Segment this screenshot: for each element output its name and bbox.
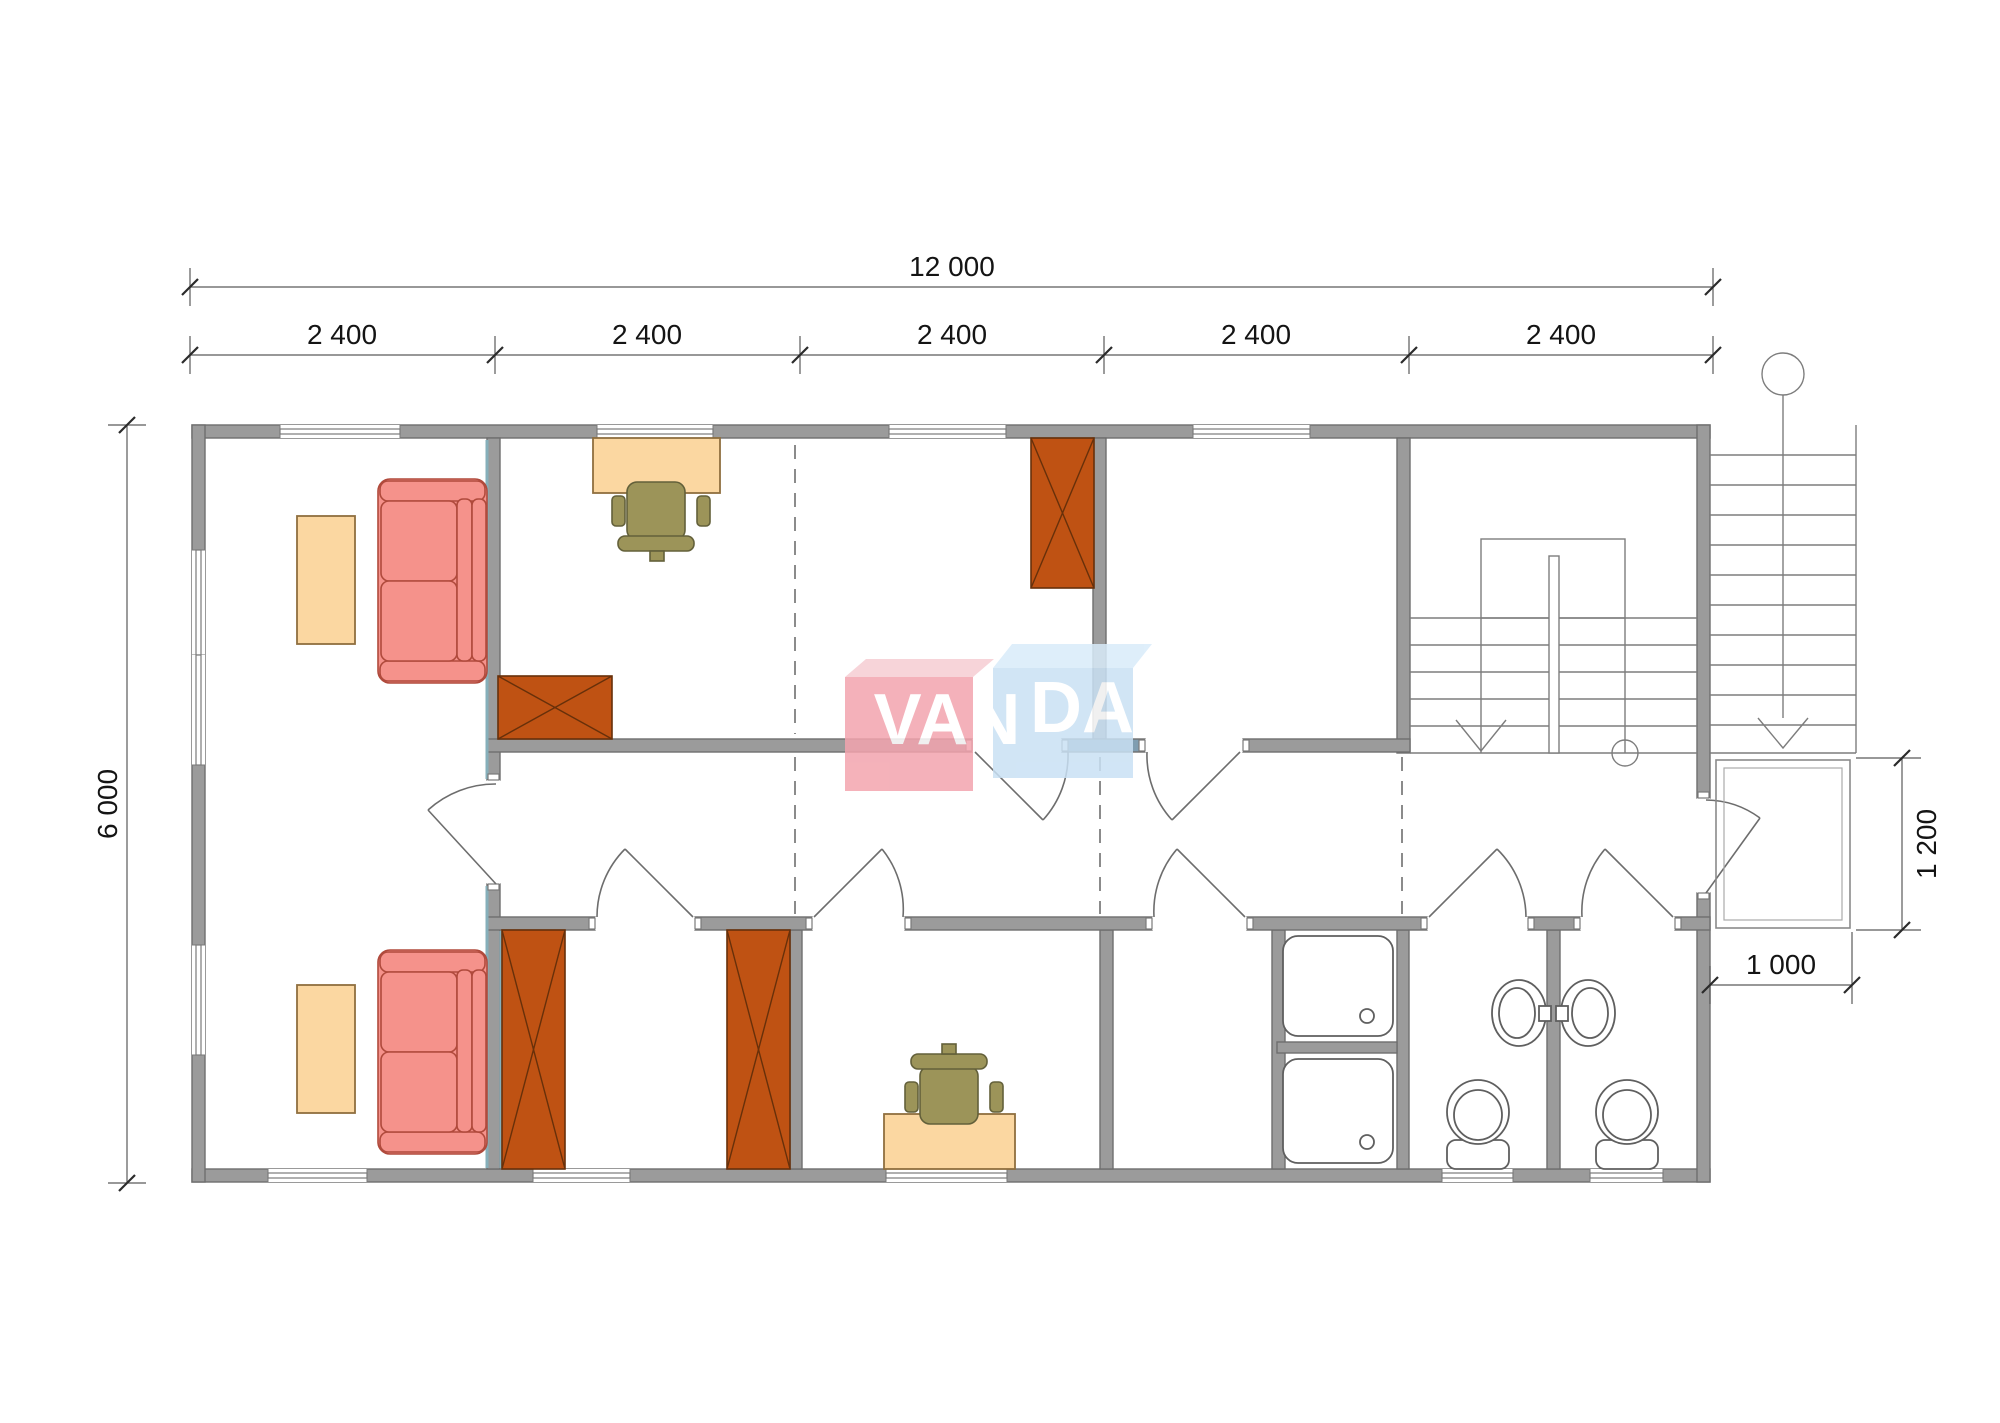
door-opening [1574, 917, 1681, 930]
wall-hall-bottom-2 [695, 917, 812, 930]
coffee-table [297, 985, 355, 1113]
dim-label-height: 6 000 [92, 769, 123, 839]
sofa [378, 950, 487, 1154]
wall-bedroom1-right [790, 930, 802, 1169]
dim-label-porch-depth: 1 200 [1911, 809, 1942, 879]
window [192, 945, 205, 1055]
wall-shower-divider [1277, 1042, 1397, 1053]
wall-exterior-right-lower [1697, 893, 1710, 1182]
window [889, 425, 1006, 438]
dim-label-bay-1: 2 400 [307, 319, 377, 350]
dim-label-bay-3: 2 400 [917, 319, 987, 350]
shower-tray [1283, 1059, 1393, 1163]
dim-label-total-width: 12 000 [909, 251, 995, 282]
wardrobe [727, 930, 790, 1169]
door-opening [487, 774, 500, 890]
floor-plan-canvas: 12 000 2 400 2 400 2 400 2 400 2 400 6 0… [0, 0, 2000, 1423]
window [533, 1169, 630, 1182]
wall-hall-bottom-3 [905, 917, 1152, 930]
window [192, 655, 205, 765]
shower-tray [1283, 936, 1393, 1036]
wall-hall-top-right [1243, 739, 1410, 752]
stair-rail [1549, 556, 1559, 753]
wardrobe [1031, 438, 1094, 588]
wall-exterior-left [192, 425, 205, 1182]
window [192, 550, 205, 655]
door-opening [1421, 917, 1534, 930]
wall-hall-bottom-1 [487, 917, 595, 930]
door-opening [1146, 917, 1253, 930]
wall-stair-left [1397, 438, 1410, 753]
window [886, 1169, 1007, 1182]
watermark-red-box-top [845, 659, 994, 677]
dim-label-porch-width: 1 000 [1746, 949, 1816, 980]
window [1193, 425, 1310, 438]
dim-label-bay-4: 2 400 [1221, 319, 1291, 350]
toilet [1596, 1080, 1658, 1169]
floor-plan-drawing: 12 000 2 400 2 400 2 400 2 400 2 400 6 0… [0, 0, 2000, 1423]
sofa [378, 479, 487, 683]
door-opening [589, 917, 701, 930]
wall-hall-bottom-5 [1528, 917, 1580, 930]
window [268, 1169, 367, 1182]
wall-bedroom2-right [1100, 930, 1113, 1169]
dim-label-bay-5: 2 400 [1526, 319, 1596, 350]
watermark-text-right: DA [1030, 668, 1134, 748]
door-opening [1139, 739, 1249, 752]
door-opening [806, 917, 911, 930]
toilet [1447, 1080, 1509, 1169]
watermark-logo: VAN DA [845, 644, 1152, 791]
coffee-table [297, 516, 355, 644]
wall-wc-divider [1547, 930, 1560, 1169]
wardrobe [498, 676, 612, 739]
dim-label-bay-2: 2 400 [612, 319, 682, 350]
wardrobe [502, 930, 565, 1169]
wall-shower-right [1397, 930, 1409, 1169]
window [1590, 1169, 1663, 1182]
window [1442, 1169, 1513, 1182]
window [597, 425, 713, 438]
wall-exterior-right-upper [1697, 425, 1710, 798]
door-opening [1697, 792, 1710, 899]
watermark-blue-box-top [993, 644, 1152, 668]
watermark-text-left: VAN [874, 680, 1021, 760]
wall-hall-bottom-4 [1247, 917, 1427, 930]
window [280, 425, 400, 438]
